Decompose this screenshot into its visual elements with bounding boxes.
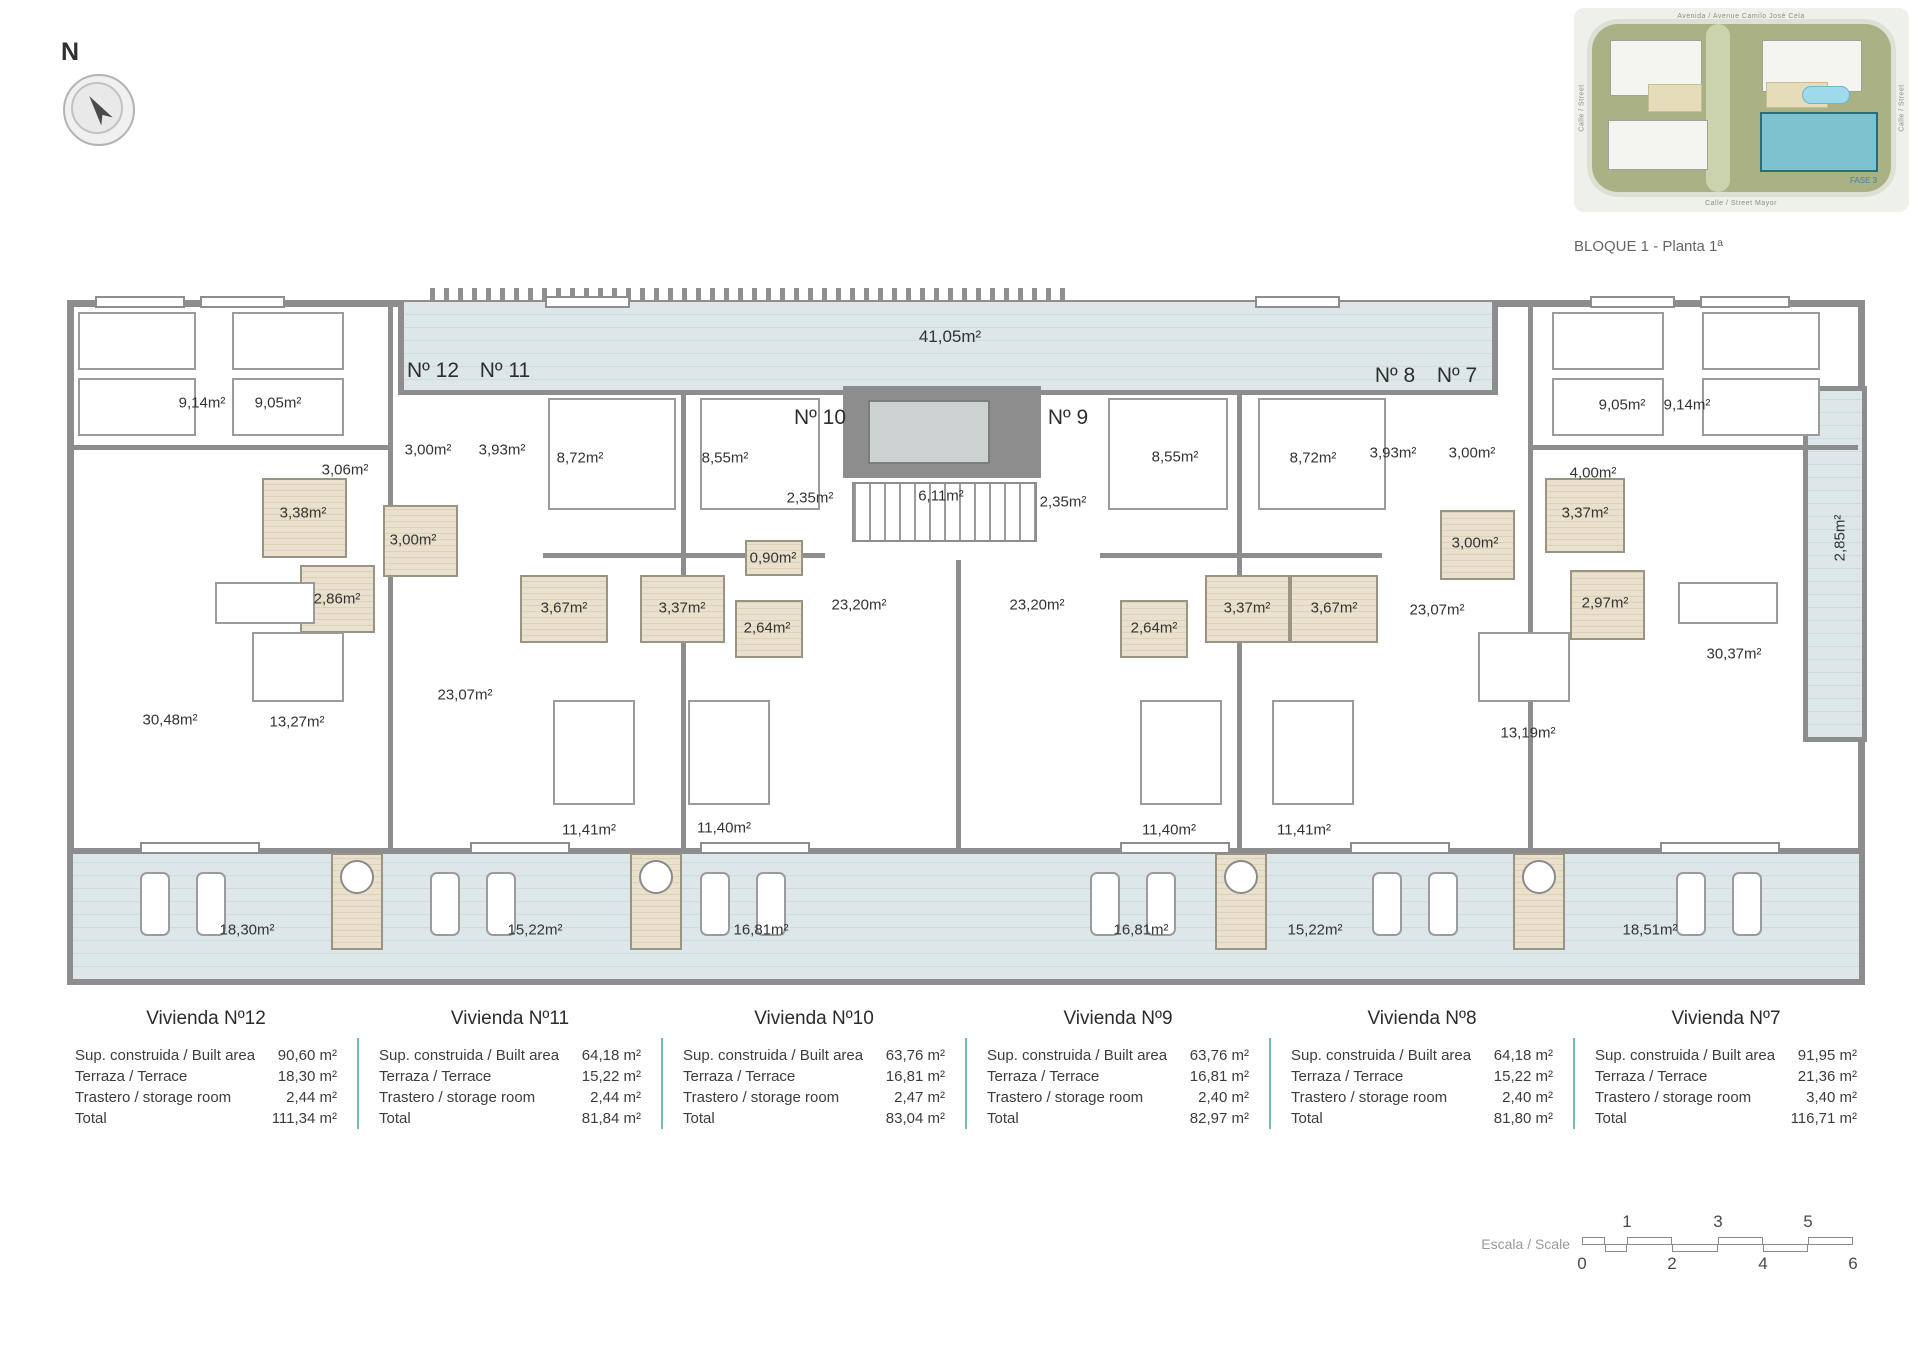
table-row-label: Trastero / storage room [1291, 1087, 1447, 1108]
scale-number: 1 [1622, 1212, 1631, 1232]
window-opening [1660, 842, 1780, 854]
furniture-outline [1372, 872, 1402, 936]
washer-icon [1224, 860, 1258, 894]
furniture-outline [252, 632, 344, 702]
room-area-label: 3,67m² [541, 600, 588, 617]
furniture-outline [700, 872, 730, 936]
table-row-value: 16,81 m² [1190, 1066, 1249, 1087]
room-area-label: 3,37m² [1224, 600, 1271, 617]
table-row-value: 2,44 m² [590, 1087, 641, 1108]
floor-plan-sheet: N Avenida / Avenue Camilo José Cela Call… [0, 0, 1920, 1358]
window-opening [95, 296, 185, 308]
vivienda-table-row: Sup. construida / Built area91,95 m² [1595, 1045, 1857, 1066]
room-area-label: 41,05m² [919, 327, 981, 347]
table-row-label: Sup. construida / Built area [987, 1045, 1167, 1066]
room-area-label: 9,05m² [255, 395, 302, 412]
table-row-value: 15,22 m² [1494, 1066, 1553, 1087]
street-label-bottom: Calle / Street Mayor [1705, 200, 1777, 207]
scale-segment [1808, 1237, 1853, 1245]
vivienda-table: Vivienda Nº7Sup. construida / Built area… [1575, 1008, 1877, 1129]
scale-numbers-bottom: 0246 [1582, 1254, 1854, 1274]
vivienda-table-row: Total83,04 m² [683, 1108, 945, 1129]
room-area-label: 2,86m² [314, 591, 361, 608]
vivienda-table-row: Sup. construida / Built area90,60 m² [75, 1045, 337, 1066]
furniture-outline [1702, 378, 1820, 436]
site-building [1608, 120, 1708, 170]
wall [1533, 445, 1858, 450]
room-area-label: 11,40m² [1142, 822, 1196, 839]
room-area-label: 23,20m² [1009, 597, 1064, 614]
room-area-label: 3,00m² [1452, 535, 1499, 552]
vivienda-table-row: Terraza / Terrace16,81 m² [987, 1066, 1249, 1087]
table-row-value: 2,47 m² [894, 1087, 945, 1108]
plan-graphic [84, 92, 113, 125]
table-row-label: Terraza / Terrace [987, 1066, 1099, 1087]
vivienda-table-title: Vivienda Nº10 [683, 1008, 945, 1030]
table-row-value: 111,34 m² [272, 1108, 337, 1129]
street-label-right: Calle / Street [1899, 84, 1906, 131]
table-row-label: Total [987, 1108, 1019, 1129]
wall [956, 560, 961, 848]
window-opening [1255, 296, 1340, 308]
site-pool [1802, 86, 1850, 104]
vivienda-table-row: Total81,84 m² [379, 1108, 641, 1129]
vivienda-table-row: Total82,97 m² [987, 1108, 1249, 1129]
room-area-label: 30,48m² [142, 712, 197, 729]
vivienda-table-row: Terraza / Terrace18,30 m² [75, 1066, 337, 1087]
table-row-value: 2,40 m² [1502, 1087, 1553, 1108]
room-area-label: 11,41m² [1277, 822, 1331, 839]
table-row-label: Trastero / storage room [75, 1087, 231, 1108]
room-area-label: 3,93m² [1370, 445, 1417, 462]
vivienda-table-row: Terraza / Terrace16,81 m² [683, 1066, 945, 1087]
room-area-label: 18,30m² [219, 922, 274, 939]
vivienda-table: Vivienda Nº10Sup. construida / Built are… [663, 1008, 965, 1129]
furniture-outline [1478, 632, 1570, 702]
scale-segment [1627, 1237, 1672, 1245]
vivienda-table-title: Vivienda Nº11 [379, 1008, 641, 1030]
site-path [1706, 24, 1730, 192]
table-row-label: Sup. construida / Built area [1595, 1045, 1775, 1066]
window-opening [200, 296, 285, 308]
room-area-label: 6,11m² [918, 488, 964, 505]
table-row-label: Total [75, 1108, 107, 1129]
vivienda-table-row: Sup. construida / Built area63,76 m² [987, 1045, 1249, 1066]
table-row-label: Sup. construida / Built area [1291, 1045, 1471, 1066]
vivienda-table: Vivienda Nº9Sup. construida / Built area… [967, 1008, 1269, 1129]
table-row-value: 81,84 m² [582, 1108, 641, 1129]
table-row-value: 90,60 m² [278, 1045, 337, 1066]
furniture-outline [140, 872, 170, 936]
table-row-label: Sup. construida / Built area [75, 1045, 255, 1066]
table-row-value: 82,97 m² [1190, 1108, 1249, 1129]
vivienda-table: Vivienda Nº12Sup. construida / Built are… [55, 1008, 357, 1129]
room-area-label: 2,35m² [787, 490, 834, 507]
table-row-label: Trastero / storage room [683, 1087, 839, 1108]
room-area-label: 0,90m² [750, 550, 797, 567]
table-row-value: 81,80 m² [1494, 1108, 1553, 1129]
room-area-label: 23,07m² [1409, 602, 1464, 619]
scale-number: 4 [1758, 1254, 1767, 1274]
vivienda-table-title: Vivienda Nº8 [1291, 1008, 1553, 1030]
site-plan-thumbnail: Avenida / Avenue Camilo José Cela Calle … [1574, 8, 1909, 212]
room-area-label: 8,55m² [702, 450, 749, 467]
scale-numbers-top: 135 [1582, 1212, 1854, 1232]
furniture-outline [215, 582, 315, 624]
room-area-label: 11,40m² [697, 820, 751, 837]
table-row-label: Terraza / Terrace [75, 1066, 187, 1087]
vivienda-table-row: Total81,80 m² [1291, 1108, 1553, 1129]
vivienda-table-row: Terraza / Terrace15,22 m² [379, 1066, 641, 1087]
table-row-label: Trastero / storage room [987, 1087, 1143, 1108]
room-area-label: 13,19m² [1500, 725, 1555, 742]
room-area-label: 16,81m² [1113, 922, 1168, 939]
side-terrace [1803, 386, 1867, 742]
room-area-label: 9,14m² [179, 395, 226, 412]
room-area-label: 8,55m² [1152, 449, 1199, 466]
table-row-value: 3,40 m² [1806, 1087, 1857, 1108]
furniture-outline [1678, 582, 1778, 624]
furniture-outline [1702, 312, 1820, 370]
furniture-outline [1272, 700, 1354, 805]
furniture-outline [1428, 872, 1458, 936]
scale-number: 3 [1713, 1212, 1722, 1232]
vivienda-table-row: Sup. construida / Built area63,76 m² [683, 1045, 945, 1066]
common-terrace [400, 302, 1496, 392]
table-row-value: 63,76 m² [1190, 1045, 1249, 1066]
table-row-value: 2,40 m² [1198, 1087, 1249, 1108]
street-label-top: Avenida / Avenue Camilo José Cela [1677, 13, 1805, 20]
vivienda-table-row: Trastero / storage room2,44 m² [379, 1087, 641, 1108]
table-row-label: Trastero / storage room [1595, 1087, 1751, 1108]
table-row-value: 64,18 m² [1494, 1045, 1553, 1066]
table-row-label: Total [1291, 1108, 1323, 1129]
room-area-label: 2,97m² [1582, 595, 1629, 612]
furniture-outline [78, 312, 196, 370]
wall [74, 445, 392, 450]
unit-number-label: Nº 9 [1048, 406, 1088, 430]
room-area-label: 2,64m² [1131, 620, 1178, 637]
furniture-outline [232, 312, 344, 370]
furniture-outline [1140, 700, 1222, 805]
room-area-label: 3,00m² [405, 442, 452, 459]
scale-segment [1718, 1237, 1763, 1245]
scale-segment [1582, 1237, 1605, 1245]
table-row-value: 16,81 m² [886, 1066, 945, 1087]
scale-segment [1605, 1244, 1627, 1252]
table-row-label: Terraza / Terrace [379, 1066, 491, 1087]
room-area-label: 23,07m² [437, 687, 492, 704]
scale-label: Escala / Scale [1420, 1236, 1570, 1252]
vivienda-table-row: Trastero / storage room3,40 m² [1595, 1087, 1857, 1108]
furniture-outline [1676, 872, 1706, 936]
room-area-label: 16,81m² [733, 922, 788, 939]
table-row-value: 2,44 m² [286, 1087, 337, 1108]
scale-segment [1672, 1244, 1718, 1252]
table-row-value: 21,36 m² [1798, 1066, 1857, 1087]
wall [1100, 553, 1382, 558]
table-row-value: 64,18 m² [582, 1045, 641, 1066]
vivienda-table-row: Total111,34 m² [75, 1108, 337, 1129]
room-area-label: 3,67m² [1311, 600, 1358, 617]
table-row-label: Sup. construida / Built area [683, 1045, 863, 1066]
vivienda-table-row: Terraza / Terrace15,22 m² [1291, 1066, 1553, 1087]
table-row-label: Terraza / Terrace [1595, 1066, 1707, 1087]
furniture-outline [1552, 312, 1664, 370]
elevator-shaft [868, 400, 990, 464]
window-opening [470, 842, 570, 854]
room-area-label: 3,37m² [659, 600, 706, 617]
table-row-value: 18,30 m² [278, 1066, 337, 1087]
vivienda-table-title: Vivienda Nº7 [1595, 1008, 1857, 1030]
room-area-label: 15,22m² [507, 922, 562, 939]
unit-number-label: Nº 12 [407, 359, 459, 383]
room-area-label: 30,37m² [1706, 646, 1761, 663]
table-row-label: Sup. construida / Built area [379, 1045, 559, 1066]
furniture-outline [1732, 872, 1762, 936]
room-area-label: 9,14m² [1664, 397, 1711, 414]
scale-number: 2 [1667, 1254, 1676, 1274]
table-row-label: Total [1595, 1108, 1627, 1129]
table-row-value: 91,95 m² [1798, 1045, 1857, 1066]
room-area-label: 2,85m² [1832, 515, 1849, 562]
unit-number-label: Nº 8 [1375, 364, 1415, 388]
scale-bar [1582, 1237, 1854, 1255]
washer-icon [340, 860, 374, 894]
unit-number-label: Nº 11 [480, 359, 530, 383]
north-label: N [61, 38, 165, 67]
room-area-label: 11,41m² [562, 822, 616, 839]
street-label-left: Calle / Street [1579, 84, 1586, 131]
vivienda-table-row: Sup. construida / Built area64,18 m² [379, 1045, 641, 1066]
room-area-label: 8,72m² [557, 450, 604, 467]
site-plaza [1648, 84, 1702, 112]
room-area-label: 3,00m² [1449, 445, 1496, 462]
table-row-value: 63,76 m² [886, 1045, 945, 1066]
table-row-value: 15,22 m² [582, 1066, 641, 1087]
room-area-label: 18,51m² [1622, 922, 1677, 939]
table-row-label: Terraza / Terrace [683, 1066, 795, 1087]
vivienda-table-title: Vivienda Nº9 [987, 1008, 1249, 1030]
phase-label: FASE 3 [1850, 176, 1877, 185]
vivienda-table-row: Total116,71 m² [1595, 1108, 1857, 1129]
table-row-value: 116,71 m² [1791, 1108, 1857, 1129]
washer-icon [1522, 860, 1556, 894]
room-area-label: 13,27m² [269, 714, 324, 731]
north-compass: N [55, 38, 165, 154]
washer-icon [639, 860, 673, 894]
table-row-label: Trastero / storage room [379, 1087, 535, 1108]
unit-number-label: Nº 10 [794, 406, 846, 430]
window-opening [1590, 296, 1675, 308]
scale-number: 0 [1577, 1254, 1586, 1274]
window-opening [1350, 842, 1450, 854]
window-opening [140, 842, 260, 854]
room-area-label: 3,38m² [280, 505, 327, 522]
wall [1492, 300, 1498, 395]
compass-circle [63, 74, 135, 146]
scale-segment [1763, 1244, 1808, 1252]
furniture-outline [430, 872, 460, 936]
unit-summary-tables: Vivienda Nº12Sup. construida / Built are… [55, 1008, 1877, 1129]
vivienda-table-row: Terraza / Terrace21,36 m² [1595, 1066, 1857, 1087]
table-row-label: Terraza / Terrace [1291, 1066, 1403, 1087]
room-area-label: 2,35m² [1040, 494, 1087, 511]
furniture-outline [553, 700, 635, 805]
window-opening [700, 842, 810, 854]
table-row-label: Total [379, 1108, 411, 1129]
furniture-outline [688, 700, 770, 805]
vivienda-table-row: Sup. construida / Built area64,18 m² [1291, 1045, 1553, 1066]
room-area-label: 2,64m² [744, 620, 791, 637]
vivienda-table: Vivienda Nº11Sup. construida / Built are… [359, 1008, 661, 1129]
room-area-label: 15,22m² [1287, 922, 1342, 939]
vivienda-table-row: Trastero / storage room2,47 m² [683, 1087, 945, 1108]
room-area-label: 3,06m² [322, 462, 369, 479]
room-area-label: 4,00m² [1570, 465, 1617, 482]
scale-number: 5 [1803, 1212, 1812, 1232]
wall [398, 300, 404, 395]
vivienda-table-title: Vivienda Nº12 [75, 1008, 337, 1030]
railing-hatch [430, 288, 1070, 301]
room-area-label: 3,00m² [390, 532, 437, 549]
window-opening [1700, 296, 1790, 308]
room-area-label: 23,20m² [831, 597, 886, 614]
plan-caption: BLOQUE 1 - Planta 1ª [1574, 238, 1723, 255]
room-area-label: 3,37m² [1562, 505, 1609, 522]
table-row-value: 83,04 m² [886, 1108, 945, 1129]
wall [1528, 300, 1533, 848]
table-row-label: Total [683, 1108, 715, 1129]
vivienda-table-row: Trastero / storage room2,44 m² [75, 1087, 337, 1108]
site-building-highlighted [1760, 112, 1878, 172]
room-area-label: 9,05m² [1599, 397, 1646, 414]
vivienda-table: Vivienda Nº8Sup. construida / Built area… [1271, 1008, 1573, 1129]
room-area-label: 3,93m² [479, 442, 526, 459]
scale-number: 6 [1848, 1254, 1857, 1274]
vivienda-table-row: Trastero / storage room2,40 m² [987, 1087, 1249, 1108]
vivienda-table-row: Trastero / storage room2,40 m² [1291, 1087, 1553, 1108]
room-area-label: 8,72m² [1290, 450, 1337, 467]
window-opening [1120, 842, 1230, 854]
window-opening [545, 296, 630, 308]
unit-number-label: Nº 7 [1437, 364, 1477, 388]
